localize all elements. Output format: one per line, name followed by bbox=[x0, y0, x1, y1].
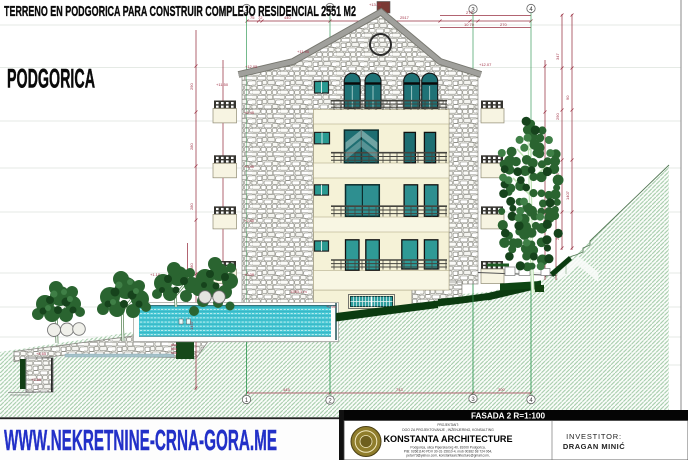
svg-text:+0.00: +0.00 bbox=[244, 272, 255, 277]
svg-text:+8.40: +8.40 bbox=[244, 110, 255, 115]
svg-text:275: 275 bbox=[466, 10, 473, 15]
svg-text:280: 280 bbox=[189, 203, 194, 210]
svg-text:1407: 1407 bbox=[565, 190, 570, 200]
svg-text:2517: 2517 bbox=[400, 15, 410, 20]
svg-text:+0.00: +0.00 bbox=[326, 304, 337, 309]
svg-text:+2.60: +2.60 bbox=[31, 377, 42, 382]
svg-text:KONSTANTA ARCHITECTURE: KONSTANTA ARCHITECTURE bbox=[384, 434, 513, 444]
svg-text:TERRENO EN PODGORICA PARA CONS: TERRENO EN PODGORICA PARA CONSTRUIR COMP… bbox=[4, 3, 356, 20]
svg-text:PODGORICA: PODGORICA bbox=[7, 64, 95, 94]
svg-text:+11.50: +11.50 bbox=[216, 82, 229, 87]
svg-text:+13.06: +13.06 bbox=[369, 2, 382, 7]
svg-text:347: 347 bbox=[555, 53, 560, 60]
svg-text:290: 290 bbox=[189, 83, 194, 90]
svg-text:+4.65: +4.65 bbox=[36, 351, 47, 356]
svg-text:10 70: 10 70 bbox=[464, 22, 475, 27]
svg-text:743: 743 bbox=[396, 387, 403, 392]
svg-text:90: 90 bbox=[565, 95, 570, 100]
svg-text:300: 300 bbox=[498, 387, 505, 392]
svg-text:DRAGAN MINIĆ: DRAGAN MINIĆ bbox=[563, 442, 625, 451]
svg-text:+12.05: +12.05 bbox=[245, 64, 258, 69]
svg-text:290: 290 bbox=[555, 113, 560, 120]
svg-text:PROJEKTANT:: PROJEKTANT: bbox=[437, 423, 458, 427]
svg-text:DOO ZA PROJEKTOVANJE , INŽENJ: DOO ZA PROJEKTOVANJE , INŽENJERING, KONS… bbox=[402, 427, 494, 432]
svg-text:445: 445 bbox=[283, 387, 290, 392]
svg-text:+2.40: +2.40 bbox=[244, 218, 255, 223]
svg-text:+5.40: +5.40 bbox=[244, 164, 255, 169]
svg-text:petar73@yahoo.com, konstantaar: petar73@yahoo.com, konstantaarchitecture… bbox=[406, 453, 489, 457]
svg-text:WWW.NEKRETNINE-CRNA-GORA.ME: WWW.NEKRETNINE-CRNA-GORA.ME bbox=[4, 425, 277, 457]
svg-text:INVESTITOR:: INVESTITOR: bbox=[566, 432, 622, 441]
svg-text:1283,1 m: 1283,1 m bbox=[290, 289, 307, 294]
svg-text:FASADA 2 R=1:100: FASADA 2 R=1:100 bbox=[471, 411, 546, 420]
svg-text:280: 280 bbox=[189, 143, 194, 150]
svg-text:+11.90: +11.90 bbox=[297, 49, 310, 54]
svg-text:270: 270 bbox=[500, 22, 507, 27]
svg-text:+12.07: +12.07 bbox=[479, 62, 492, 67]
svg-text:1457: 1457 bbox=[189, 320, 194, 330]
